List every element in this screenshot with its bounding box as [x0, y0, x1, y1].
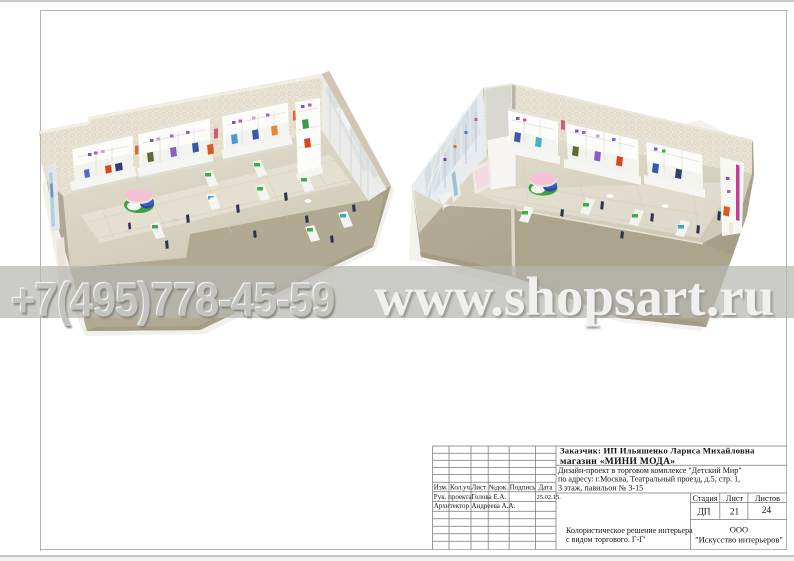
svg-text:Дата: Дата: [539, 483, 554, 491]
svg-text:Листов: Листов: [755, 494, 780, 503]
svg-text:"Искусство интерьеров": "Искусство интерьеров": [695, 535, 783, 545]
svg-text:21: 21: [730, 508, 740, 518]
svg-text:Подпись: Подпись: [510, 483, 536, 491]
svg-text:Колористическое решение интерь: Колористическое решение интерьера: [566, 526, 693, 535]
svg-text:Архитектор: Архитектор: [434, 502, 470, 510]
svg-text:25.02.15.: 25.02.15.: [537, 494, 562, 501]
svg-text:Андреева А.А.: Андреева А.А.: [472, 502, 516, 510]
svg-text:ДП: ДП: [697, 508, 710, 518]
svg-text:Голова Е.А.: Голова Е.А.: [472, 493, 507, 501]
svg-text:Дизайн-проект в торговом ком: Дизайн-проект в торговом комплексе "Детс…: [558, 466, 742, 475]
svg-text:Лист: Лист: [726, 494, 744, 503]
svg-text:Рук. проекта: Рук. проекта: [434, 493, 473, 501]
svg-text:Лист: Лист: [472, 483, 487, 491]
svg-text:по адресу: г.Москва, Театральн: по адресу: г.Москва, Театральный проезд,…: [558, 475, 740, 484]
svg-text:Изм.: Изм.: [434, 483, 448, 491]
svg-text:24: 24: [762, 506, 772, 516]
svg-text:3 этаж, павильон № 3-15: 3 этаж, павильон № 3-15: [558, 483, 643, 492]
svg-text:Кол.уч.: Кол.уч.: [450, 483, 472, 491]
svg-text:№док.: №док.: [489, 483, 508, 491]
svg-text:с видом торгового. Г-Г': с видом торгового. Г-Г': [566, 535, 646, 544]
svg-text:ООО: ООО: [730, 525, 748, 535]
svg-text:Стадия: Стадия: [693, 494, 718, 503]
svg-text:Заказчик: ИП Ильяшенко Лариса: Заказчик: ИП Ильяшенко Лариса Михайловна: [560, 446, 755, 456]
